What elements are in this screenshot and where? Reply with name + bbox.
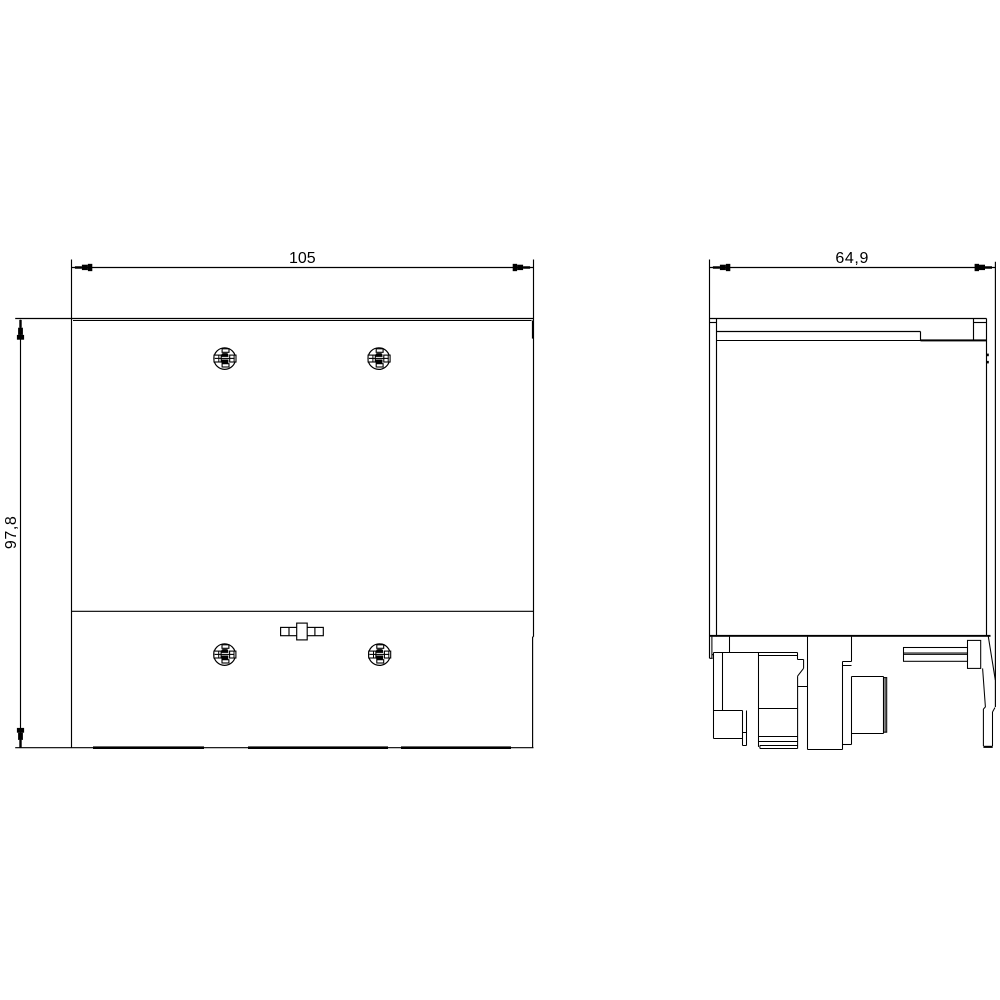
svg-text:64,9: 64,9 bbox=[835, 250, 869, 267]
svg-text:105: 105 bbox=[289, 250, 316, 267]
svg-text:97,8: 97,8 bbox=[3, 516, 20, 550]
